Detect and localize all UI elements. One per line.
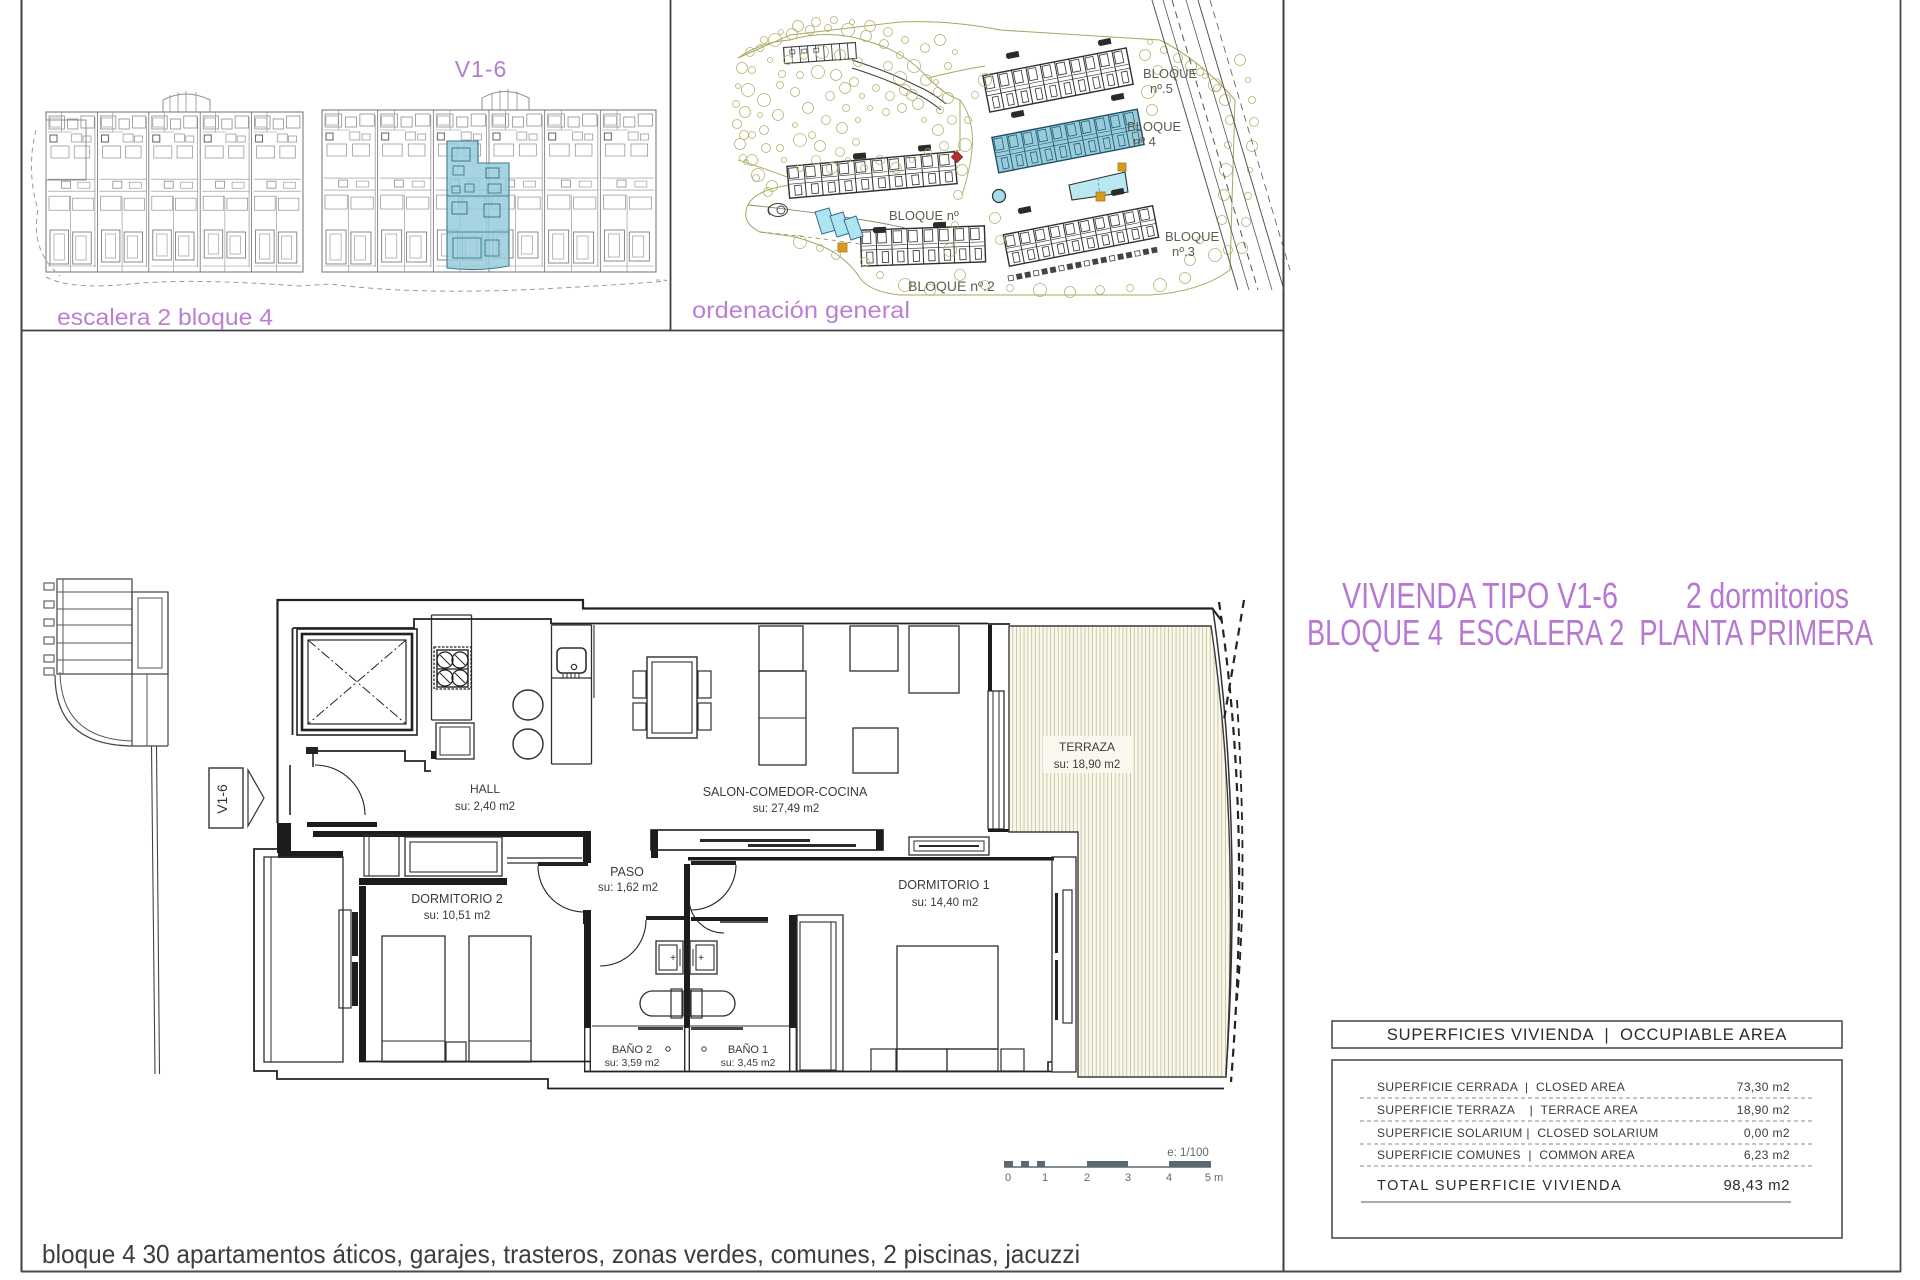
svg-text:escalera 2 bloque 4: escalera 2 bloque 4 — [57, 304, 273, 330]
svg-text:su: 14,40 m2: su: 14,40 m2 — [912, 897, 978, 909]
svg-text:3: 3 — [1125, 1172, 1131, 1184]
svg-text:BLOQUE: BLOQUE — [1165, 229, 1220, 244]
svg-text:18,90 m2: 18,90 m2 — [1737, 1103, 1790, 1117]
svg-text:su: 3,59 m2: su: 3,59 m2 — [605, 1057, 660, 1069]
svg-text:su: 1,62 m2: su: 1,62 m2 — [598, 882, 658, 894]
svg-text:su: 10,51 m2: su: 10,51 m2 — [424, 910, 490, 922]
svg-text:nº.3: nº.3 — [1172, 244, 1195, 259]
svg-text:2: 2 — [1084, 1172, 1090, 1184]
svg-text:PASO: PASO — [610, 865, 644, 879]
svg-text:TERRAZA: TERRAZA — [1059, 740, 1115, 754]
svg-text:SUPERFICIES VIVIENDA | OCCUP: SUPERFICIES VIVIENDA | OCCUPIABLE AREA — [1387, 1026, 1787, 1044]
svg-text:TOTAL SUPERFICIE VIVIENDA: TOTAL SUPERFICIE VIVIENDA — [1377, 1178, 1622, 1194]
svg-text:4: 4 — [1166, 1172, 1172, 1184]
svg-text:+: + — [670, 953, 676, 964]
svg-text:SUPERFICIE SOLARIUM | CLOSED: SUPERFICIE SOLARIUM | CLOSED SOLARIUM — [1377, 1126, 1659, 1140]
svg-text:nº.5: nº.5 — [1150, 81, 1173, 96]
svg-text:5 m: 5 m — [1205, 1172, 1223, 1184]
svg-text:V1-6: V1-6 — [455, 56, 508, 82]
svg-text:DORMITORIO 2: DORMITORIO 2 — [411, 892, 502, 906]
svg-text:+: + — [698, 953, 704, 964]
svg-text:BLOQUE: BLOQUE — [1127, 119, 1182, 134]
svg-text:SUPERFICIE CERRADA | CLOSED: SUPERFICIE CERRADA | CLOSED AREA — [1377, 1080, 1625, 1094]
svg-text:e: 1/100: e: 1/100 — [1167, 1147, 1209, 1159]
svg-text:0,00 m2: 0,00 m2 — [1744, 1126, 1790, 1140]
svg-text:0: 0 — [1005, 1172, 1011, 1184]
svg-text:73,30 m2: 73,30 m2 — [1737, 1080, 1790, 1094]
svg-text:HALL: HALL — [470, 782, 500, 796]
svg-text:BLOQUE nº: BLOQUE nº — [889, 208, 959, 223]
svg-text:su: 3,45 m2: su: 3,45 m2 — [721, 1057, 776, 1069]
svg-text:DORMITORIO 1: DORMITORIO 1 — [898, 878, 989, 892]
svg-text:BAÑO 2: BAÑO 2 — [612, 1043, 652, 1056]
svg-text:1: 1 — [1042, 1172, 1048, 1184]
svg-text:nº 4: nº 4 — [1133, 134, 1156, 149]
svg-text:6,23 m2: 6,23 m2 — [1744, 1148, 1790, 1162]
svg-text:su: 2,40 m2: su: 2,40 m2 — [455, 801, 515, 813]
svg-text:ordenación general: ordenación general — [692, 297, 910, 323]
svg-text:VIVIENDA TIPO V1-6: VIVIENDA TIPO V1-6 — [1342, 575, 1618, 616]
svg-text:bloque 4 30 apartamentos ático: bloque 4 30 apartamentos áticos, garajes… — [42, 1239, 1080, 1269]
svg-text:2 dormitorios: 2 dormitorios — [1686, 575, 1849, 616]
svg-text:su: 18,90 m2: su: 18,90 m2 — [1054, 759, 1120, 771]
svg-text:98,43 m2: 98,43 m2 — [1723, 1177, 1790, 1194]
svg-text:BLOQUE nº.2: BLOQUE nº.2 — [908, 278, 995, 294]
svg-text:SALON-COMEDOR-COCINA: SALON-COMEDOR-COCINA — [703, 785, 868, 799]
svg-text:su: 27,49 m2: su: 27,49 m2 — [753, 803, 819, 815]
svg-text:SUPERFICIE TERRAZA | TERRA: SUPERFICIE TERRAZA | TERRACE AREA — [1377, 1103, 1638, 1117]
svg-text:BLOQUE 4 ESCALERA 2 PLANTA P: BLOQUE 4 ESCALERA 2 PLANTA PRIMERA — [1307, 612, 1873, 653]
svg-text:V1-6: V1-6 — [214, 784, 230, 814]
svg-text:BAÑO 1: BAÑO 1 — [728, 1043, 768, 1056]
svg-text:SUPERFICIE COMUNES | COMMON: SUPERFICIE COMUNES | COMMON AREA — [1377, 1148, 1635, 1162]
svg-text:BLOQUE: BLOQUE — [1143, 66, 1198, 81]
